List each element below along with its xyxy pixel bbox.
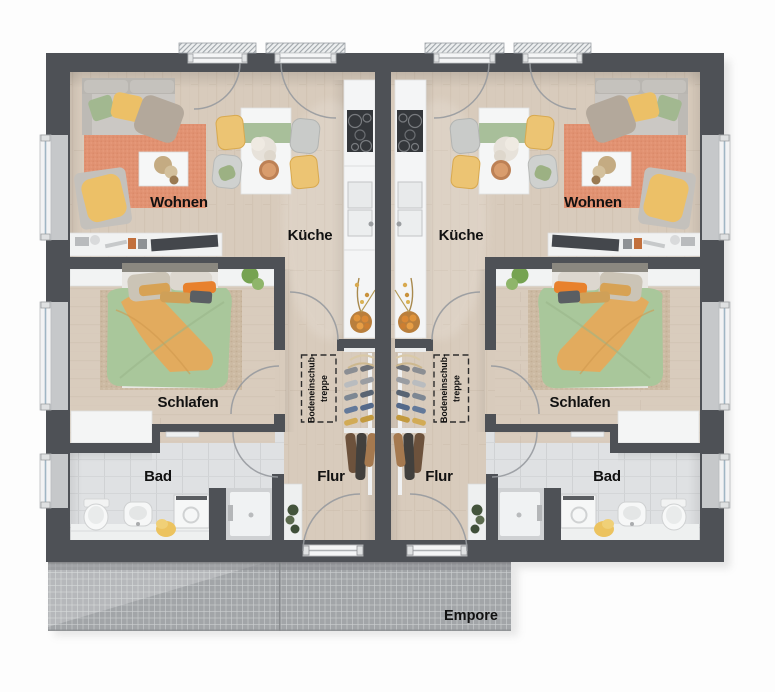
svg-text:Schlafen: Schlafen bbox=[158, 394, 219, 411]
svg-text:Wohnen: Wohnen bbox=[150, 194, 208, 211]
svg-text:Küche: Küche bbox=[288, 227, 333, 244]
svg-text:Bodeneinschub-: Bodeneinschub- bbox=[439, 354, 449, 423]
svg-text:Empore: Empore bbox=[444, 608, 498, 624]
svg-text:Schlafen: Schlafen bbox=[550, 394, 611, 411]
svg-text:Flur: Flur bbox=[317, 468, 345, 485]
svg-text:treppe: treppe bbox=[452, 375, 462, 402]
svg-text:Wohnen: Wohnen bbox=[564, 194, 622, 211]
svg-text:Küche: Küche bbox=[439, 227, 484, 244]
svg-text:Bodeneinschub-: Bodeneinschub- bbox=[307, 354, 317, 423]
svg-text:Bad: Bad bbox=[144, 468, 172, 485]
svg-text:Flur: Flur bbox=[425, 468, 453, 485]
svg-text:Bad: Bad bbox=[593, 468, 621, 485]
svg-text:treppe: treppe bbox=[319, 375, 329, 402]
